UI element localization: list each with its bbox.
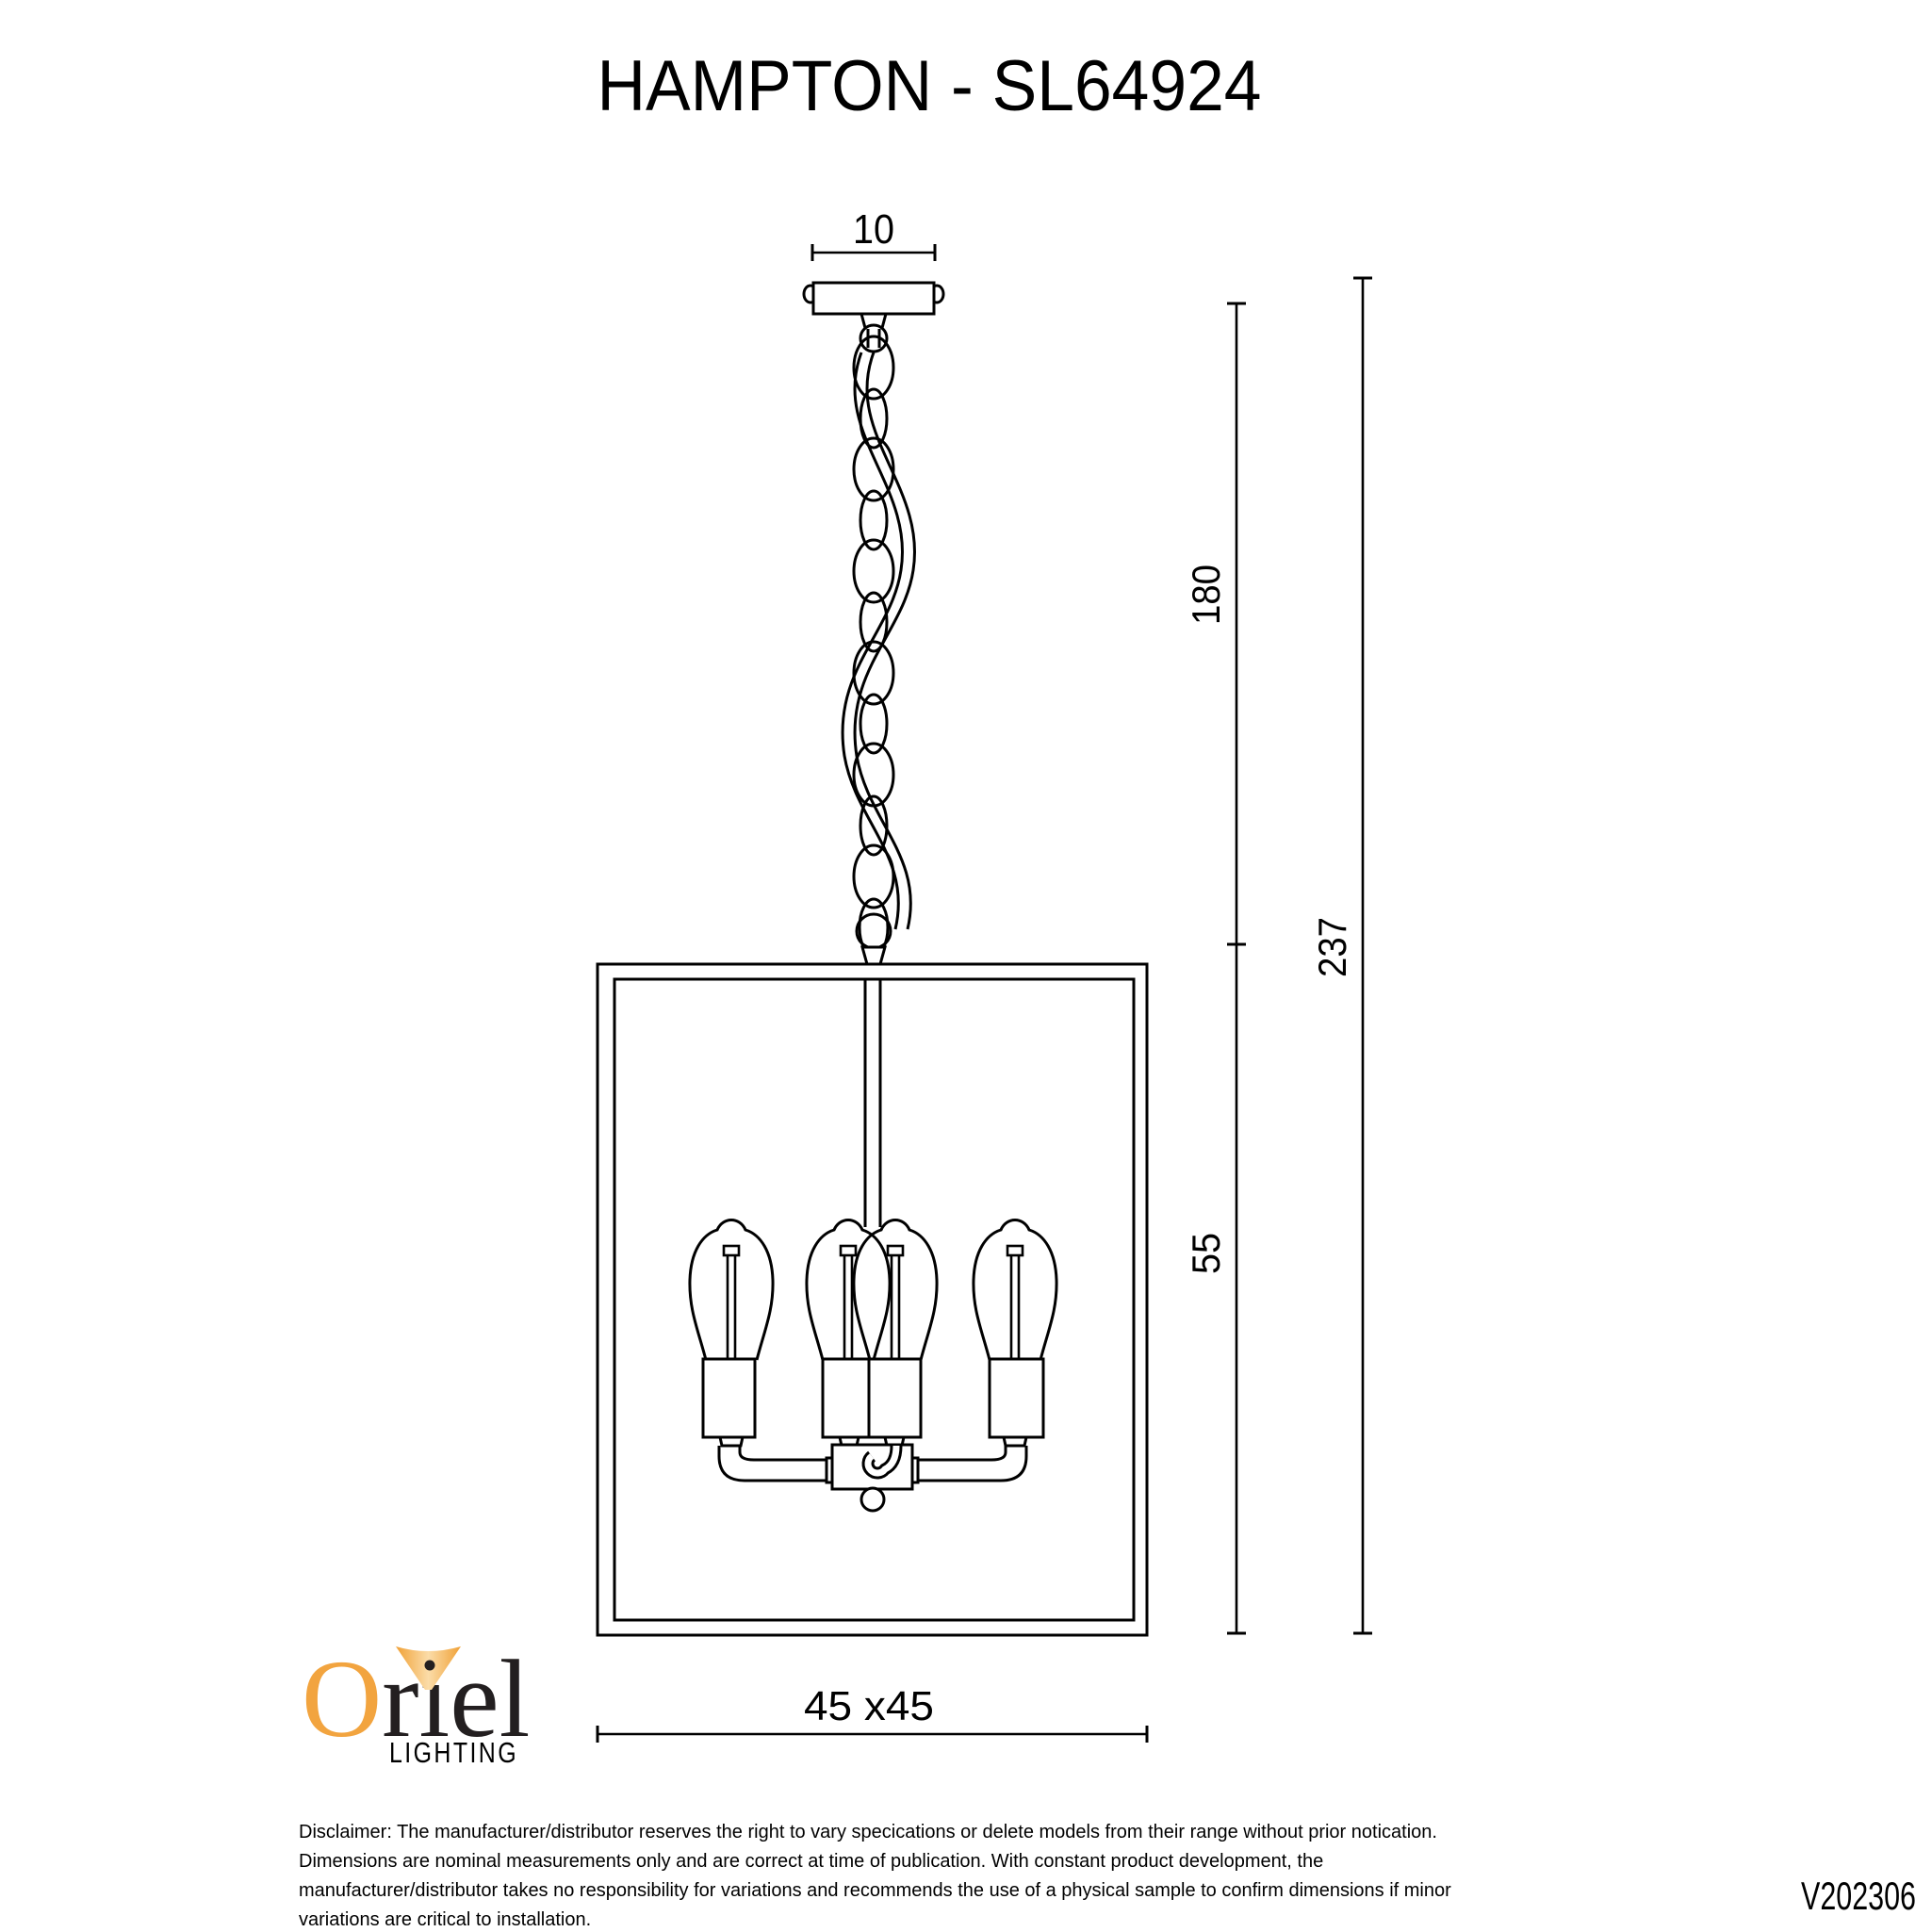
socket xyxy=(869,1359,921,1437)
ceiling-canopy xyxy=(804,283,943,352)
disclaimer-line-1: Disclaimer: The manufacturer/distributor… xyxy=(299,1822,1437,1842)
brand-letter-o: O xyxy=(302,1637,382,1760)
socket xyxy=(703,1359,755,1437)
cage-height-label: 55 xyxy=(1184,1233,1228,1274)
disclaimer-line-3: manufacturer/distributor takes no respon… xyxy=(299,1880,1451,1901)
spec-sheet-page: HAMPTON - SL64924 10 xyxy=(0,0,1932,1932)
page-title: HAMPTON - SL64924 xyxy=(598,46,1262,126)
socket-collar xyxy=(1004,1437,1026,1446)
disclaimer-line-2: Dimensions are nominal measurements only… xyxy=(299,1851,1323,1872)
canopy-plate xyxy=(813,283,934,314)
oriel-lighting-logo: Oriel LIGHTING xyxy=(302,1637,530,1769)
suspension-chain xyxy=(843,336,915,964)
chain-drop-label: 180 xyxy=(1184,565,1228,625)
disclaimer-block: Disclaimer: The manufacturer/distributor… xyxy=(299,1822,1451,1930)
frame-connector xyxy=(862,947,885,964)
lamp-sockets xyxy=(703,1359,1043,1446)
brand-tagline: LIGHTING xyxy=(389,1736,518,1769)
dimension-drawing: HAMPTON - SL64924 10 xyxy=(0,0,1932,1932)
finial-ball xyxy=(861,1488,884,1511)
width-dimension: 45 x45 xyxy=(598,1683,1147,1743)
socket-collar xyxy=(720,1437,743,1446)
version-code: V202306 xyxy=(1801,1874,1916,1918)
total-drop-label: 237 xyxy=(1310,917,1354,977)
cage-frame xyxy=(598,964,1147,1635)
chain-end-loop xyxy=(857,914,891,948)
canopy-width-dimension: 10 xyxy=(812,206,935,261)
disclaimer-line-4: variations are critical to installation. xyxy=(299,1909,591,1930)
width-depth-label: 45 x45 xyxy=(804,1683,934,1729)
light-dot-icon xyxy=(425,1661,435,1671)
socket xyxy=(990,1359,1043,1437)
canopy-width-label: 10 xyxy=(853,206,894,253)
vertical-dimensions: 180 55 237 xyxy=(1184,278,1372,1633)
socket xyxy=(823,1359,869,1437)
